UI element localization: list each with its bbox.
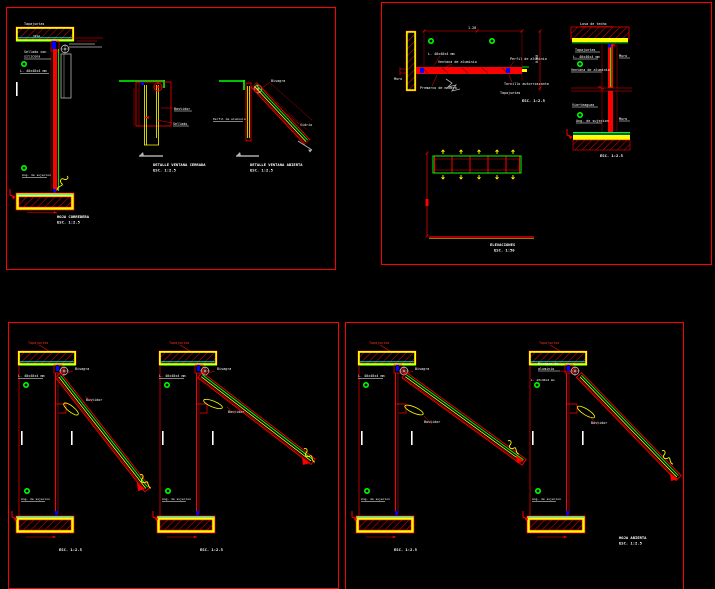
label-bisagra: Bisagra [217,367,231,371]
detail-scale: ESC. 1:2.5 [394,547,418,552]
hinge-icon [60,44,70,54]
arm-icon [203,397,224,410]
elevation-title: ELEVACIONES [490,242,516,247]
label-muro: Muro [619,117,627,121]
open-sash [402,372,526,465]
detail-scale: ESC. 1:2.5 [522,98,546,103]
donut-marker [22,62,26,66]
label-bisagra: Bisagra [75,367,89,371]
detail-scale: ESC. 1:2.5 [600,153,624,158]
label-bastidor: Bastidor [591,421,607,425]
detail-open-2: Tapajuntas Bisagra de aluminio L. 40x40x… [523,341,681,546]
detail-scale: ESC. 1:2.5 [250,168,274,173]
detail-elevation: ELEVACIONES ESC. 1:50 [426,150,535,253]
label-anchor: Ang. de sujecion [162,497,191,501]
label-tapajuntas: Tapajuntas [500,91,520,95]
label-sellado-2: silicona [24,55,40,59]
cut-arrow-icon [567,129,572,139]
detail-scale: ESC. 1:2.5 [619,541,643,546]
label-angle: L. 40x40x4 mm [358,374,385,378]
label-tapajuntas: Tapajuntas [575,48,595,52]
label-angle: L. 40x40x4 mm [428,52,455,56]
detail-title: HOJA CORREDERA [57,214,90,219]
label-tornillo: Tornillo autorroscante [504,82,549,86]
label-angle: L. 40x40x4 mm [20,69,47,73]
detail-open-1: Tapajuntas Bisagra L. 40x40x4 mm Bastido… [12,341,151,552]
label-bastidor: Bastidor [174,107,190,111]
label-tapajuntas: Tapajuntas [539,341,559,345]
lintel-hatch [16,27,74,41]
label-bisagra: Bisagra [415,367,429,371]
label-tapajuntas: Tapajuntas [169,341,189,345]
panel-open-sash-details-b: Tapajuntas Bisagra L. 40x40x4 mm Bastido… [345,322,684,589]
detail-hoja-corredera: Tapajuntas VIGA Sellado con silicona L. … [10,22,103,225]
label-anchor: Ang. de sujecion [21,497,50,501]
label-anchor: Ang. de sujecion [532,497,561,501]
label-sellado-1: Sellado con [24,50,46,54]
detail-section: Losa de techo Tapajuntas L. 40x40x4 mm V… [567,22,632,158]
elevation-scale: ESC. 1:50 [494,248,515,253]
donut-marker [429,39,433,43]
label-sellado: Sellado [173,122,187,126]
label-anchor: Ang. de sujecion [576,119,609,123]
label-bisagra: Bisagra [271,79,285,83]
detail-open-1: Tapajuntas Bisagra L. 40x40x4 mm Bastido… [352,341,526,552]
window-opening [352,351,416,538]
panel-plan-section-elevation: 1.20 0.60 L. 40x40x4 mm Ventana de alumi… [381,2,712,265]
donut-marker [22,166,26,170]
label-muro: Muro [619,54,627,58]
frame-lower [608,91,613,133]
detail-title: HOJA ABIERTA [619,535,647,540]
donut-marker [490,39,494,43]
detail-open-2: Tapajuntas Bisagra L. 40x40x4 mm Bastido… [153,341,315,552]
label-anchor: Ang. de sujecion [22,173,51,177]
sill-hatch [16,193,74,210]
open-sash [55,373,150,492]
label-muro: Muro [394,77,402,81]
dim-top: 1.20 [468,26,476,30]
label-angle: L. 40x40x4 mm [18,374,45,378]
detail-title: DETALLE VENTANA CERRADA [153,162,206,167]
panel-window-details-closed: Tapajuntas VIGA Sellado con silicona L. … [6,7,336,270]
drawing-window-details-closed: Tapajuntas VIGA Sellado con silicona L. … [7,8,335,269]
cut-arrow-icon [10,189,15,199]
label-tapajuntas: Tapajuntas [28,341,48,345]
label-losa: Losa de techo [580,22,607,26]
label-window: Ventana de aluminio [438,60,477,64]
detail-ventana-abierta: Bisagra Perfil de aluminio Vidrio DETALL… [213,79,312,173]
drawing-open-sash-a: Tapajuntas Bisagra L. 40x40x4 mm Bastido… [9,323,338,588]
label-bastidor: Bastidor [424,420,440,424]
label-angle: L. 40x40x4 mm [531,378,555,382]
detail-title: DETALLE VENTANA ABIERTA [250,162,303,167]
label-bastidor: Bastidor [228,410,244,414]
detail-scale: ESC. 1:2.5 [57,220,81,225]
detail-scale: ESC. 1:2.5 [200,547,224,552]
detail-plan: 1.20 0.60 L. 40x40x4 mm Ventana de alumi… [394,26,549,103]
detail-scale: ESC. 1:2.5 [59,547,83,552]
lintel-hatch [571,27,629,39]
open-sash [198,372,315,464]
detail-ventana-cerrada: Bastidor Sellado DETALLE VENTANA CERRADA… [119,80,206,173]
label-viga: VIGA [33,34,40,38]
label-tapajuntas: Tapajuntas [24,22,44,26]
break-line [571,86,632,91]
label-angle: L. 40x40x4 mm [573,55,600,59]
open-sash [576,373,681,481]
label-bisagra-2: aluminio [538,367,554,371]
arm-icon [576,404,596,420]
drawing-plan-section-elevation: 1.20 0.60 L. 40x40x4 mm Ventana de alumi… [382,3,711,264]
label-window: Ventana de aluminio [571,68,610,72]
label-tapajuntas: Tapajuntas [369,341,389,345]
section-tick [16,82,18,96]
sill-hatch [573,140,630,150]
label-perfil: Perfil de aluminio [213,117,246,121]
panel-open-sash-details-a: Tapajuntas Bisagra L. 40x40x4 mm Bastido… [8,322,339,589]
donut-marker [578,113,582,117]
elevation-frame [433,156,521,173]
label-profile: Perfil de aluminio [510,57,547,61]
window-opening [12,351,76,538]
label-anchor: Ang. de sujecion [361,497,390,501]
drawing-open-sash-b: Tapajuntas Bisagra L. 40x40x4 mm Bastido… [346,323,683,589]
label-vierteaguas: Vierteaguas [572,103,594,107]
arm-icon [404,403,425,417]
label-bisagra-1: Bisagra de [538,362,558,366]
detail-scale: ESC. 1:2.5 [153,168,177,173]
label-angle: L. 40x40x4 mm [159,374,186,378]
donut-marker [578,62,582,66]
cad-model-space: Tapajuntas VIGA Sellado con silicona L. … [0,0,715,589]
